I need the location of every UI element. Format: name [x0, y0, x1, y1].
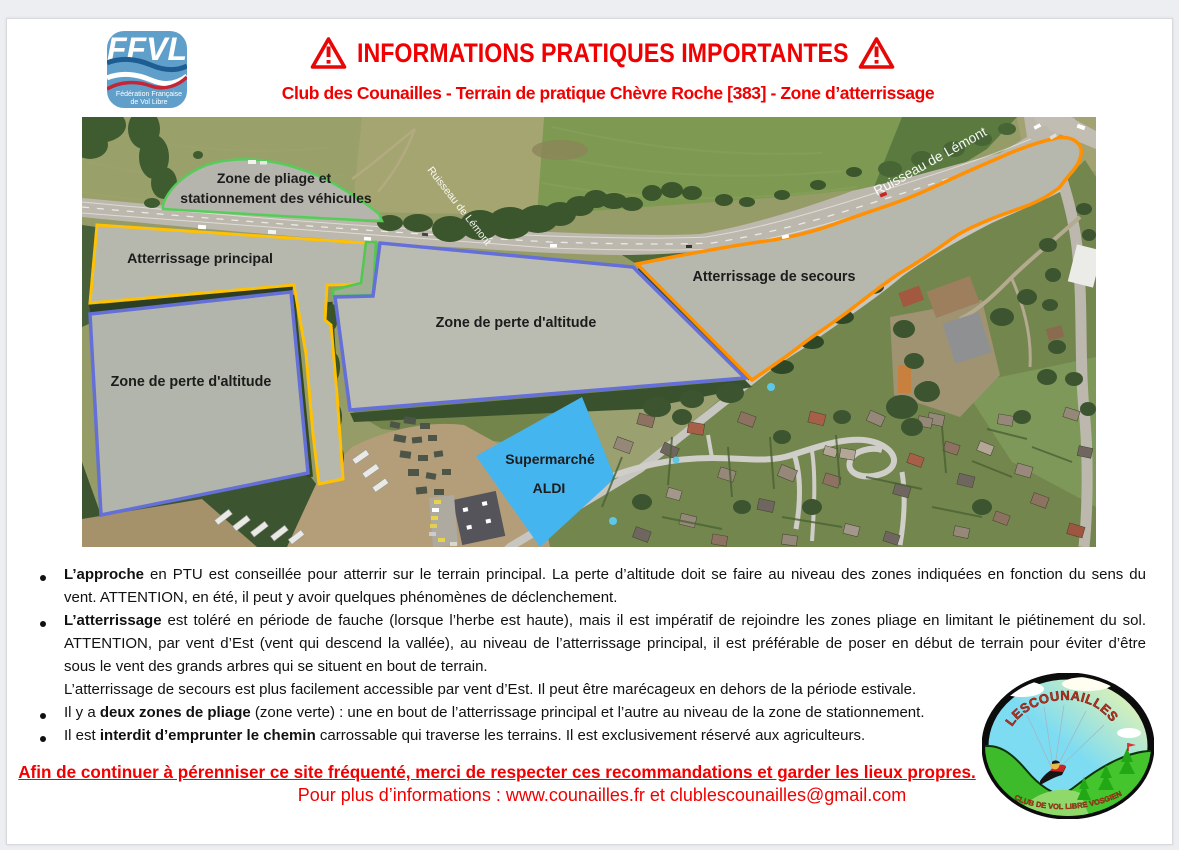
svg-text:Atterrissage de secours: Atterrissage de secours: [693, 269, 856, 285]
svg-text:Atterrissage principal: Atterrissage principal: [127, 251, 273, 267]
svg-text:Zone de perte d'altitude: Zone de perte d'altitude: [436, 315, 597, 331]
svg-text:Zone de pliage et: Zone de pliage et: [217, 170, 332, 186]
svg-text:Zone de perte d'altitude: Zone de perte d'altitude: [111, 374, 272, 390]
svg-text:Supermarché: Supermarché: [505, 451, 595, 467]
svg-text:ALDI: ALDI: [533, 480, 566, 496]
svg-text:stationnement des véhicules: stationnement des véhicules: [180, 190, 372, 206]
